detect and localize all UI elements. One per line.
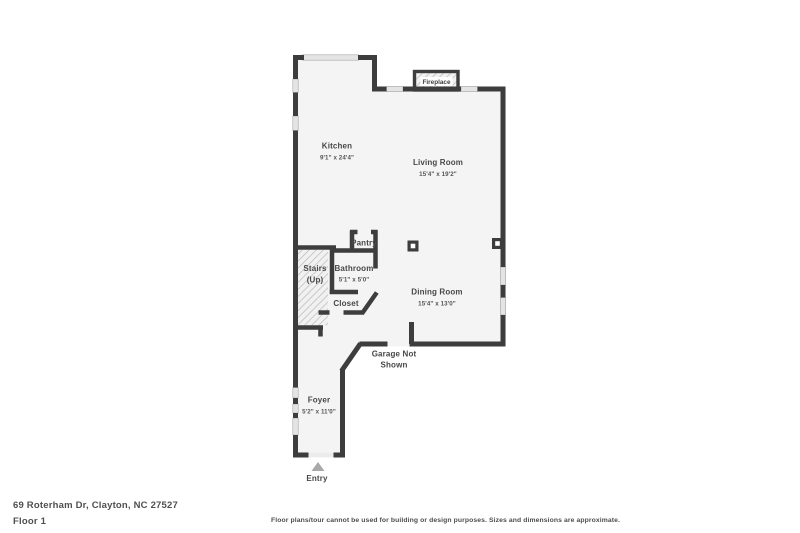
column-marker-center bbox=[411, 244, 416, 249]
room-dims-dining-room: 15'4" x 13'0" bbox=[418, 301, 456, 308]
room-dims-kitchen: 9'1" x 24'4" bbox=[320, 155, 354, 162]
room-label-living-room: Living Room bbox=[413, 158, 463, 167]
window-living-top-right bbox=[461, 86, 478, 91]
column-marker-center bbox=[495, 241, 500, 246]
room-dims-foyer: 5'2" x 11'0" bbox=[302, 409, 336, 416]
entry-label: Entry bbox=[306, 474, 328, 483]
property-address: 69 Roterham Dr, Clayton, NC 27527 bbox=[13, 500, 178, 511]
room-dims-bathroom: 5'1" x 5'0" bbox=[339, 277, 370, 284]
window-kitchen-top bbox=[303, 55, 359, 60]
window-dining-right-1 bbox=[500, 267, 505, 285]
room-label-pantry: Pantry bbox=[351, 239, 377, 248]
room-label-closet: Closet bbox=[333, 299, 359, 308]
room-label-foyer: Foyer bbox=[308, 396, 331, 405]
entry-arrow-icon bbox=[312, 462, 325, 471]
room-label-bathroom: Bathroom bbox=[335, 264, 374, 273]
garage-note-line1: Garage Not bbox=[372, 350, 417, 359]
window-kitchen-left-1 bbox=[293, 79, 298, 93]
room-label-dining-room: Dining Room bbox=[411, 288, 462, 297]
window-kitchen-left-2 bbox=[293, 116, 298, 131]
window-foyer-left-1 bbox=[293, 388, 298, 399]
room-label-kitchen: Kitchen bbox=[322, 142, 352, 151]
floorplan: Fireplace bbox=[0, 0, 800, 533]
floor-label: Floor 1 bbox=[13, 516, 46, 527]
window-living-top-left bbox=[387, 86, 404, 91]
window-foyer-left-2 bbox=[293, 404, 298, 413]
disclaimer-text: Floor plans/tour cannot be used for buil… bbox=[271, 517, 620, 524]
room-label-stairs: Stairs bbox=[303, 264, 327, 273]
room-dims-living-room: 15'4" x 19'2" bbox=[419, 171, 457, 178]
room-dims-stairs: (Up) bbox=[307, 276, 324, 285]
garage-note-line2: Shown bbox=[381, 361, 408, 370]
window-foyer-left-3 bbox=[293, 418, 298, 435]
window-dining-right-2 bbox=[500, 298, 505, 316]
entry-threshold bbox=[309, 453, 334, 457]
fireplace-label: Fireplace bbox=[422, 79, 451, 86]
